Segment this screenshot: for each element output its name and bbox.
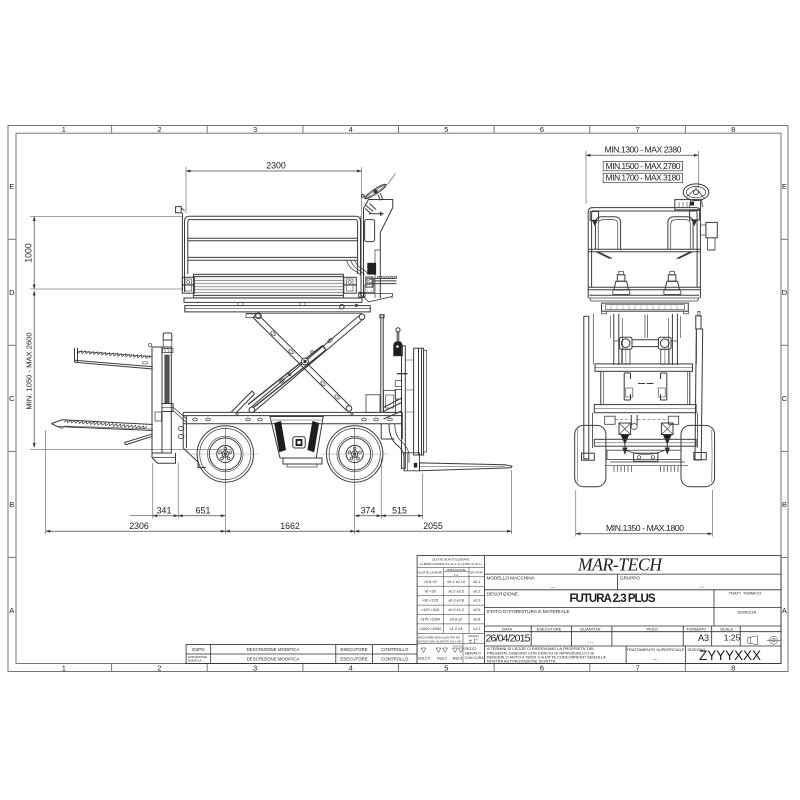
svg-text:TRATTAMENTO SUPERFICIALE: TRATTAMENTO SUPERFICIALE <box>627 647 685 652</box>
svg-text:±0.2 ±0.5: ±0.2 ±0.5 <box>448 589 464 593</box>
svg-text:6: 6 <box>540 663 544 672</box>
svg-text:QUANTITA': QUANTITA' <box>580 626 601 631</box>
svg-text:±0.3: ±0.3 <box>473 599 480 603</box>
svg-text:2300: 2300 <box>266 160 286 170</box>
svg-text:SCALA: SCALA <box>720 626 733 631</box>
svg-text:B: B <box>9 500 14 509</box>
svg-text:±0.5 ±1.2: ±0.5 ±1.2 <box>448 608 464 612</box>
svg-text:±0.1: ±0.1 <box>473 580 480 584</box>
svg-text:ESECUTORE: ESECUTORE <box>537 626 562 631</box>
svg-text:>1000 <2000: >1000 <2000 <box>419 627 441 631</box>
svg-text:651: 651 <box>196 506 211 516</box>
svg-text:2: 2 <box>157 663 161 672</box>
svg-text:7: 7 <box>636 125 640 134</box>
svg-text:CONTROLLO: CONTROLLO <box>381 647 409 652</box>
svg-text:DATA: DATA <box>502 626 512 631</box>
svg-text:MIN. 1050 - MAX 2600: MIN. 1050 - MAX 2600 <box>25 332 34 409</box>
svg-text:Ra12.5: Ra12.5 <box>418 657 430 661</box>
svg-text:SBAVATO: SBAVATO <box>465 652 481 656</box>
svg-text:2: 2 <box>157 125 161 134</box>
svg-text:>6 <30: >6 <30 <box>424 589 436 593</box>
svg-text:...: ... <box>550 584 555 590</box>
svg-text:E: E <box>9 182 14 191</box>
svg-text:CONTROLLO: CONTROLLO <box>381 656 409 661</box>
svg-text:1662: 1662 <box>280 521 300 531</box>
svg-text:PESO: PESO <box>646 626 657 631</box>
svg-text:374: 374 <box>361 506 376 516</box>
svg-text:MODIFICA: MODIFICA <box>188 658 202 662</box>
svg-text:±1.2 ±3: ±1.2 ±3 <box>450 627 463 631</box>
svg-text:SIT./FOR.: SIT./FOR. <box>470 571 484 575</box>
svg-text:±0.8: ±0.8 <box>473 618 480 622</box>
svg-text:>120 <315: >120 <315 <box>421 608 439 612</box>
svg-text:6: 6 <box>540 125 544 134</box>
svg-text:MAR-TECH: MAR-TECH <box>577 555 663 575</box>
svg-text:>30 <120: >30 <120 <box>422 599 438 603</box>
svg-text:±0.5: ±0.5 <box>473 608 480 612</box>
svg-text:FUTURA 2.3 PLUS: FUTURA 2.3 PLUS <box>570 593 656 605</box>
svg-text:1 2: 1 2 <box>454 573 459 577</box>
svg-text:±0.2: ±0.2 <box>473 589 480 593</box>
svg-text:4: 4 <box>349 663 353 672</box>
svg-text:STATO DI FORNITURA E MATERIALE: STATO DI FORNITURA E MATERIALE <box>487 609 570 615</box>
svg-text:TRATT. TERMICO: TRATT. TERMICO <box>729 591 762 596</box>
svg-text:MIN.1300 - MAX 2380: MIN.1300 - MAX 2380 <box>605 145 682 155</box>
svg-text:MIN.1350 - MAX.1800: MIN.1350 - MAX.1800 <box>606 523 684 533</box>
svg-text:MODELLO MACCHINA: MODELLO MACCHINA <box>487 576 536 581</box>
svg-text:PRECISIONE: PRECISIONE <box>446 568 465 572</box>
svg-text:±0.3 ±0.8: ±0.3 ±0.8 <box>448 599 464 603</box>
svg-text:26/04/2015: 26/04/2015 <box>486 633 531 645</box>
svg-text:5: 5 <box>444 125 448 134</box>
svg-text:PEZZO: PEZZO <box>465 647 477 651</box>
svg-text:ZYYYXXX: ZYYYXXX <box>699 648 761 663</box>
svg-text:1: 1 <box>62 125 66 134</box>
svg-text:1:25: 1:25 <box>724 633 741 643</box>
svg-text:±0.8 ±2: ±0.8 ±2 <box>450 618 463 622</box>
svg-text:7: 7 <box>636 663 640 672</box>
svg-text:DUREZZA: DUREZZA <box>738 609 757 614</box>
svg-text:C: C <box>9 394 15 403</box>
svg-text:3: 3 <box>253 125 257 134</box>
svg-text:A3: A3 <box>698 633 709 643</box>
svg-text:A: A <box>9 606 14 615</box>
svg-text:>375 <1000: >375 <1000 <box>420 618 440 622</box>
svg-text:ALBERI(CAMPO DA 0/-0.1)-(FORI: ALBERI(CAMPO DA 0/-0.1)-(FORI 0/+0.1) <box>420 562 482 566</box>
svg-text:515: 515 <box>392 506 407 516</box>
svg-text:...: ... <box>653 656 658 662</box>
svg-text:ANGOLI: ANGOLI <box>468 634 479 638</box>
svg-text:>0.5 <5: >0.5 <5 <box>424 580 437 584</box>
svg-text:±0.1 ±0.10: ±0.1 ±0.10 <box>447 580 465 584</box>
svg-text:CON CURA: CON CURA <box>465 656 485 660</box>
svg-text:NOSTRA AUTORIZZAZIONE SCRITTA.: NOSTRA AUTORIZZAZIONE SCRITTA. <box>487 659 556 664</box>
svg-text:D: D <box>782 288 788 297</box>
svg-text:DESCRIZIONE MODIFICA: DESCRIZIONE MODIFICA <box>247 647 300 652</box>
svg-text:D: D <box>9 288 15 297</box>
svg-text:B: B <box>782 500 787 509</box>
svg-text:QUOTE LINEARI: QUOTE LINEARI <box>418 571 442 575</box>
svg-text:A: A <box>782 606 787 615</box>
svg-text:2055: 2055 <box>423 521 443 531</box>
svg-text:E: E <box>782 182 787 191</box>
svg-text:MIN.1500 - MAX 2780: MIN.1500 - MAX 2780 <box>606 161 681 171</box>
svg-text:...: ... <box>588 638 594 645</box>
svg-text:SMUSSI NON QUOTATI 0.5 x 45°: SMUSSI NON QUOTATI 0.5 x 45° <box>416 639 462 643</box>
svg-text:C: C <box>782 394 788 403</box>
svg-text:±1.2: ±1.2 <box>473 627 480 631</box>
svg-text:ESPO: ESPO <box>192 647 205 652</box>
svg-text:1000: 1000 <box>24 243 34 263</box>
svg-text:± 1°: ± 1° <box>469 639 478 645</box>
svg-text:DESCRIZIONE: DESCRIZIONE <box>487 591 518 596</box>
svg-text:Ra3.2: Ra3.2 <box>437 657 447 661</box>
svg-text:8: 8 <box>731 663 735 672</box>
svg-text:341: 341 <box>157 506 172 516</box>
svg-text:FORMATO: FORMATO <box>687 626 707 631</box>
svg-text:GRUPPO: GRUPPO <box>620 576 640 581</box>
svg-text:8: 8 <box>731 125 735 134</box>
svg-text:1: 1 <box>62 663 66 672</box>
svg-text:MIN.1700 - MAX 3180: MIN.1700 - MAX 3180 <box>606 173 681 183</box>
svg-text:2306: 2306 <box>129 521 149 531</box>
svg-text:4: 4 <box>349 125 353 134</box>
svg-text:QUOTE NON TOLLERATE: QUOTE NON TOLLERATE <box>432 558 469 562</box>
svg-text:ESECUTORE: ESECUTORE <box>340 647 367 652</box>
svg-text:5: 5 <box>444 663 448 672</box>
svg-text:3: 3 <box>253 663 257 672</box>
svg-text:ESECUTORE: ESECUTORE <box>340 656 367 661</box>
svg-text:DESCRIZIONE MODIFICA: DESCRIZIONE MODIFICA <box>247 656 300 661</box>
svg-text:Ra0.8: Ra0.8 <box>453 657 463 661</box>
svg-text:...: ... <box>699 584 704 590</box>
